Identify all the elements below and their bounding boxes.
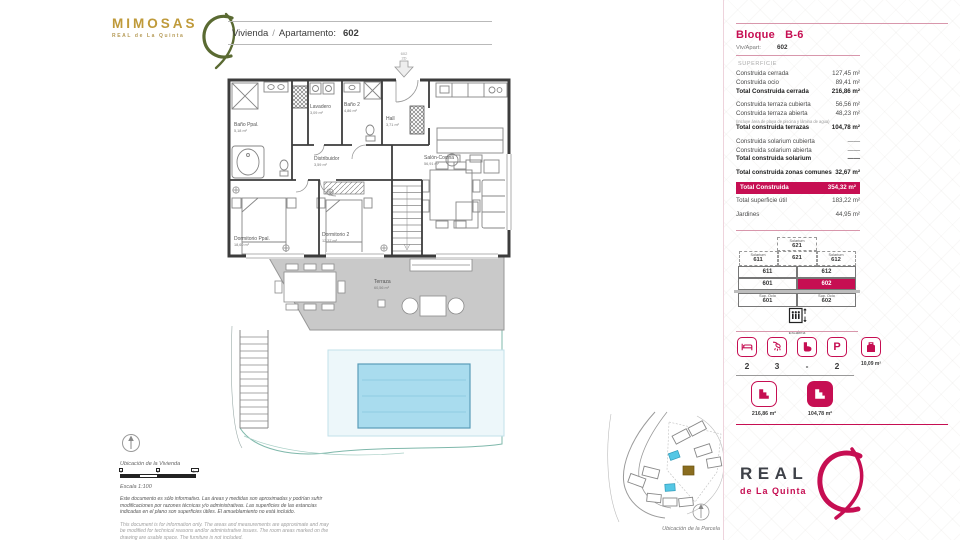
surface-row: Total superficie útil183,22 m² (736, 197, 860, 206)
surface-row: Total construida terrazas104,78 m² (736, 124, 860, 133)
svg-text:3,71 m²: 3,71 m² (386, 123, 400, 127)
unit-value: 602 (777, 44, 788, 51)
site-subject-parcel (683, 466, 694, 475)
svg-text:2D: 2D (401, 56, 406, 61)
site-building-highlight (668, 450, 680, 460)
scale-label: Escala 1:100 (120, 484, 342, 490)
building-stack-diagram: Solarium 621 Solarium 611 621 Solarium 6… (738, 237, 856, 307)
site-buildings (628, 421, 722, 507)
room-label: Distribuidor (314, 156, 340, 162)
scale-tick: 2 (156, 468, 160, 472)
svg-text:5,18 m²: 5,18 m² (234, 129, 248, 133)
title-label2: Apartamento: (279, 28, 336, 39)
entrance-arrow: 602 2D (395, 51, 413, 77)
room-label-terraza: Terraza (374, 279, 391, 285)
shower-icon (767, 337, 787, 357)
surface-row: Construida terraza cubierta56,56 m² (736, 101, 860, 110)
stack-cell-ocio-601: Sup. Ocio 601 (738, 293, 797, 307)
stack-cell-612: 612 (797, 266, 856, 278)
area-badges: 216,86 m² 104,78 m² (744, 381, 840, 417)
feature-bedrooms: 2 (736, 337, 758, 371)
terrace: Terraza 60,56 m² (268, 256, 504, 330)
features-strip: 2 3 - P 2 (736, 337, 886, 371)
svg-text:3,59 m²: 3,59 m² (314, 163, 328, 167)
surface-row: Construida solarium abierta—— (736, 147, 860, 156)
stack-cell-ocio-602: Sup. Ocio 602 (797, 293, 856, 307)
compass-icon (120, 432, 142, 454)
elevator-icon (788, 307, 807, 324)
room-label: Dormitorio 2 (322, 232, 349, 238)
logo-line1: REAL (740, 464, 808, 484)
scale-tick: 0 (119, 468, 123, 472)
logo-line2: de La Quinta (740, 486, 807, 496)
scale-bar: 0 2 4m (120, 474, 196, 478)
surface-row: Construida terraza abierta48,23 m² (736, 110, 860, 119)
feature-storage: 10,09 m² (856, 337, 886, 367)
home-location-label: Ubicación de la Vivienda (120, 461, 342, 467)
block-header: BloqueB-6 (736, 29, 804, 41)
surface-title: SUPERFICIE (738, 61, 777, 67)
room-label: Salón-Cocina (424, 155, 454, 161)
divider-accent (736, 424, 948, 425)
surface-row: Total construida solarium—— (736, 155, 860, 164)
title-unit-number: 602 (343, 28, 359, 39)
ground-band (734, 290, 860, 293)
room-label: Baño 2 (344, 102, 360, 108)
stack-cell-solarium-611: Solarium 611 (739, 251, 778, 266)
storage-icon (861, 337, 881, 357)
logo-q-icon (808, 444, 880, 522)
surface-row: Construida ocio89,41 m² (736, 79, 860, 88)
stack-cell-solarium-612: Solarium 612 (817, 251, 856, 266)
stack-cell-621: 621 (778, 251, 817, 266)
divider (736, 331, 858, 332)
site-building-highlight (665, 484, 675, 492)
parking-icon: P (827, 337, 847, 357)
surface-table: Construida cerrada127,45 m²Construida oc… (736, 70, 860, 220)
outdoor-stairs (240, 330, 268, 428)
room-area-terraza: 60,56 m² (374, 286, 390, 290)
terrace-area-badge: 104,78 m² (800, 381, 840, 417)
divider (736, 23, 948, 24)
floor-plan: Terraza 60,56 m² (224, 50, 524, 462)
unit-summary-sidebar: BloqueB-6 Viv/Apart:602 SUPERFICIE Const… (723, 0, 960, 540)
scale-tick: 4m (191, 468, 199, 472)
title-separator: / (272, 28, 275, 39)
divider (736, 55, 860, 56)
surface-row: Total Construida cerrada216,86 m² (736, 88, 860, 97)
footnotes: Ubicación de la Vivienda 0 2 4m Escala 1… (120, 432, 342, 540)
bed-icon (737, 337, 757, 357)
stack-cell-601: 601 (738, 278, 797, 290)
page-title: Vivienda / Apartamento: 602 (228, 21, 492, 45)
unit-label: Viv/Apart: (736, 45, 761, 51)
surface-row: Total construida zonas comunes32,67 m² (736, 169, 860, 178)
site-compass-icon (693, 504, 709, 520)
developer-logo: REAL de La Quinta (738, 446, 898, 526)
svg-text:12,37 m²: 12,37 m² (322, 239, 338, 243)
apartment-floor (229, 80, 509, 256)
stack-cell-602-current: 602 (797, 278, 856, 290)
stack-cell-solarium-621: Solarium 621 (777, 237, 817, 251)
block-label: Bloque (736, 29, 775, 41)
svg-text:3,09 m²: 3,09 m² (310, 111, 324, 115)
svg-text:18,60 m²: 18,60 m² (234, 243, 250, 247)
room-label: Dormitorio Ppal. (234, 236, 270, 242)
site-plan: Ubicación de la Parcela (603, 410, 735, 540)
surface-row: Construida cerrada127,45 m² (736, 70, 860, 79)
parcel-location-label: Ubicación de la Parcela (647, 526, 735, 532)
surface-row: Jardines44,95 m² (736, 211, 860, 220)
built-area-icon (751, 381, 777, 407)
built-area-badge: 216,86 m² (744, 381, 784, 417)
title-label: Vivienda (232, 28, 268, 39)
pool (358, 364, 470, 428)
terrace-area-icon (807, 381, 833, 407)
disclaimer-spanish: Este documento es sólo informativo. Las … (120, 496, 334, 516)
svg-text:56,91 m²: 56,91 m² (424, 162, 440, 166)
toilet-icon (797, 337, 817, 357)
feature-parking: P 2 (826, 337, 848, 371)
feature-toilets: - (796, 337, 818, 371)
divider (736, 230, 860, 231)
feature-bathrooms: 3 (766, 337, 788, 371)
surface-row: Construida solarium cubierta—— (736, 138, 860, 147)
disclaimer-english: This document is for information only. T… (120, 522, 334, 540)
room-label: Hall (386, 116, 395, 122)
surface-row: Total Construida354,32 m² (736, 182, 860, 194)
svg-text:4,86 m²: 4,86 m² (344, 109, 358, 113)
room-label: Lavadero (310, 104, 331, 110)
block-value: B-6 (785, 29, 804, 41)
stack-cell-611: 611 (738, 266, 797, 278)
divider (736, 375, 854, 376)
room-label: Baño Ppal. (234, 122, 258, 128)
unit-line: Viv/Apart:602 (736, 44, 788, 51)
